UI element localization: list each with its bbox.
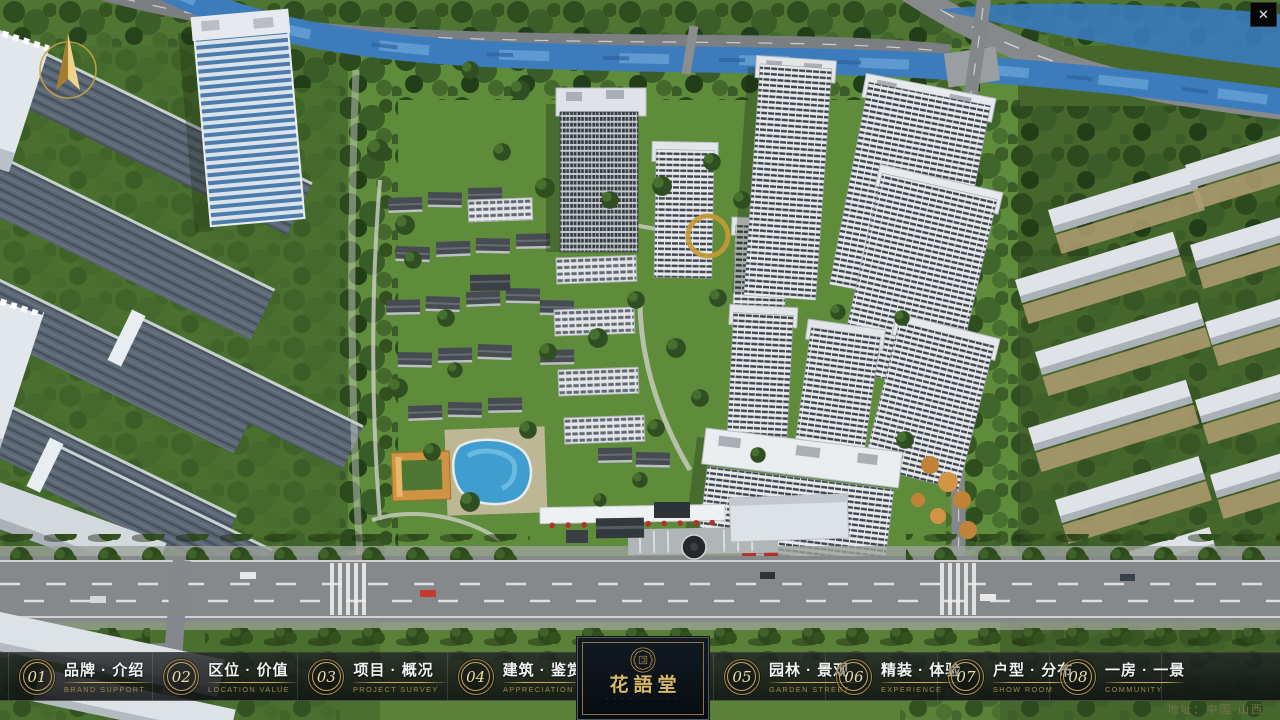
close-button[interactable]: ✕	[1250, 2, 1277, 27]
close-icon: ✕	[1258, 7, 1269, 22]
nav-underline	[64, 682, 152, 683]
logo-panel[interactable]: 花語堂 · · · · · · · · · ·	[577, 637, 709, 720]
compass-north-icon	[34, 26, 104, 106]
nav-number-badge: 04	[458, 659, 494, 695]
nav-item-garden[interactable]: 05 园林 · 景观GARDEN STREET	[713, 653, 825, 700]
nav-label-en: COMMUNITY	[1105, 685, 1179, 693]
logo-title: 花語堂	[609, 674, 681, 696]
nav-item-brand[interactable]: 01 品牌 · 介绍BRAND SUPPORT	[8, 653, 152, 700]
nav-underline	[208, 682, 297, 683]
nav-number-badge: 05	[724, 659, 760, 695]
sales-presentation-screen: ✕ 01 品牌 · 介绍BRAND SUPPORT 02 区位 · 价值LOCA…	[0, 0, 1280, 720]
site-plan-rendering	[0, 0, 1280, 720]
nav-underline	[353, 682, 446, 683]
nav-label-zh: 建筑 · 鉴赏	[503, 659, 583, 680]
tree-row-north	[0, 534, 530, 560]
nav-label-zh: 区位 · 价值	[208, 659, 297, 680]
logo-caption: · · · · · · · · · ·	[607, 696, 680, 702]
nav-group-right: 05 园林 · 景观GARDEN STREET 06 精装 · 体验EXPERI…	[713, 653, 1280, 700]
nav-group-left: 01 品牌 · 介绍BRAND SUPPORT 02 区位 · 价值LOCATI…	[0, 653, 583, 700]
nav-label-en: BRAND SUPPORT	[64, 685, 145, 693]
seal-icon	[629, 646, 657, 674]
nav-number-badge: 02	[163, 659, 199, 695]
project-address: 地址：中国·山西	[1167, 701, 1264, 717]
nav-label-en: SHOW ROOM	[993, 685, 1067, 693]
nav-label-en: PROJECT SURVEY	[353, 685, 439, 693]
pool-area	[445, 426, 548, 515]
nav-label-en: GARDEN STREET	[769, 685, 850, 693]
nav-item-architecture[interactable]: 04 建筑 · 鉴赏APPRECIATION	[447, 653, 583, 700]
nav-item-project[interactable]: 03 项目 · 概况PROJECT SURVEY	[297, 653, 446, 700]
nav-item-location[interactable]: 02 区位 · 价值LOCATION VALUE	[152, 653, 297, 700]
nav-label-en: LOCATION VALUE	[208, 685, 290, 693]
logo-frame: 花語堂 · · · · · · · · · ·	[582, 642, 704, 715]
nav-label-en: EXPERIENCE	[881, 685, 955, 693]
orange-courtyard	[391, 451, 451, 501]
nav-label-zh: 品牌 · 介绍	[64, 659, 152, 680]
nav-label-en: APPRECIATION	[503, 685, 577, 693]
blue-glass-tower	[177, 9, 307, 233]
nav-number-badge: 01	[19, 659, 55, 695]
nav-label-zh: 项目 · 概况	[353, 659, 446, 680]
nav-underline	[503, 682, 583, 683]
nav-number-badge: 03	[308, 659, 344, 695]
